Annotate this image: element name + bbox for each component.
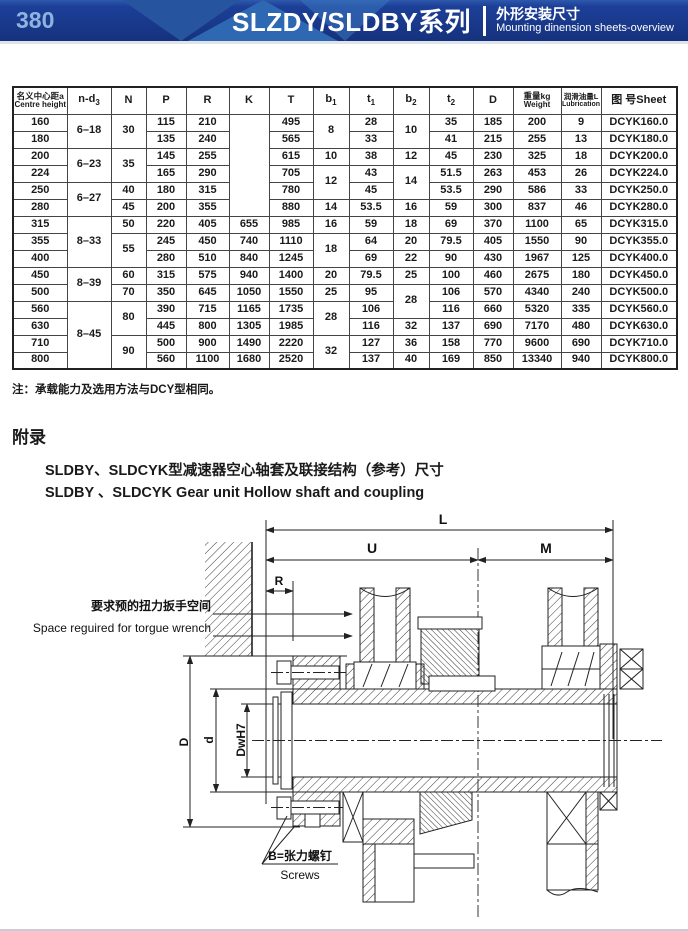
table-cell: 2675: [513, 267, 561, 284]
table-row: 3158–335022040565598516591869370110065DC…: [13, 216, 677, 233]
col-R: R: [186, 87, 229, 114]
table-cell: 10: [393, 114, 429, 148]
table-cell: 255: [513, 131, 561, 148]
table-cell: 400: [13, 250, 67, 267]
table-cell: 6–27: [67, 182, 111, 216]
table-cell: 315: [186, 182, 229, 199]
table-cell: DCYK560.0: [601, 301, 677, 318]
table-cell: 35: [429, 114, 473, 131]
table-cell: DCYK450.0: [601, 267, 677, 284]
table-cell: 1050: [229, 284, 269, 301]
table-row: 280452003558801453.5165930083746DCYK280.…: [13, 199, 677, 216]
table-cell: 32: [393, 318, 429, 335]
table-cell: 560: [146, 352, 186, 369]
table-cell: 495: [269, 114, 313, 131]
table-cell: 1305: [229, 318, 269, 335]
col-sheet: 图 号Sheet: [601, 87, 677, 114]
table-cell: 90: [561, 233, 601, 250]
table-row: 710905009001490222032127361587709600690D…: [13, 335, 677, 352]
table-cell: 2520: [269, 352, 313, 369]
table-cell: 18: [393, 216, 429, 233]
table-cell: 280: [146, 250, 186, 267]
table-header: 名义中心距a Centre height n-d3 N P R K T b1 t…: [13, 87, 677, 114]
table-cell: 22: [393, 250, 429, 267]
dim-label-d: d: [202, 736, 216, 743]
page-number: 380: [16, 7, 54, 34]
table-cell: 137: [349, 352, 393, 369]
table-cell: 100: [429, 267, 473, 284]
table-cell: DCYK280.0: [601, 199, 677, 216]
table-cell: 1967: [513, 250, 561, 267]
table-cell: 800: [13, 352, 67, 369]
table-cell: 1490: [229, 335, 269, 352]
table-cell: 16: [393, 199, 429, 216]
table-cell: 1100: [513, 216, 561, 233]
table-cell: DCYK180.0: [601, 131, 677, 148]
table-cell: 33: [349, 131, 393, 148]
table-cell: 224: [13, 165, 67, 182]
table-cell: 985: [269, 216, 313, 233]
dim-label-DwH7: DwH7: [234, 723, 248, 757]
table-cell: 215: [473, 131, 513, 148]
table-cell: 5320: [513, 301, 561, 318]
table-cell: 837: [513, 199, 561, 216]
table-cell: DCYK400.0: [601, 250, 677, 267]
table-cell: 255: [186, 148, 229, 165]
table-cell: 8–33: [67, 216, 111, 267]
table-cell: DCYK250.0: [601, 182, 677, 199]
upper-screw-assembly: [183, 656, 347, 689]
table-cell: 185: [473, 114, 513, 131]
table-cell: 70: [111, 284, 146, 301]
table-cell: 51.5: [429, 165, 473, 182]
table-cell: 565: [269, 131, 313, 148]
table-cell: 20: [313, 267, 349, 284]
table-cell: 240: [186, 131, 229, 148]
spec-table-body: 1606–183011521049582810351852009DCYK160.…: [13, 114, 677, 369]
table-cell: 145: [146, 148, 186, 165]
table-cell: DCYK355.0: [601, 233, 677, 250]
table-cell: 169: [429, 352, 473, 369]
table-cell: 16: [313, 216, 349, 233]
table-cell: 1245: [269, 250, 313, 267]
table-cell: 263: [473, 165, 513, 182]
table-cell: 350: [146, 284, 186, 301]
table-cell: 90: [429, 250, 473, 267]
table-cell: 33: [561, 182, 601, 199]
table-cell: 200: [146, 199, 186, 216]
table-cell: 165: [146, 165, 186, 182]
table-cell: 125: [561, 250, 601, 267]
table-cell: 1100: [186, 352, 229, 369]
table-cell: 43: [349, 165, 393, 182]
table-cell: 13340: [513, 352, 561, 369]
table-cell: 45: [349, 182, 393, 199]
table-cell: 445: [146, 318, 186, 335]
lower-gear-section: [414, 792, 474, 868]
col-K: K: [229, 87, 269, 114]
table-cell: 575: [186, 267, 229, 284]
table-cell: 14: [313, 199, 349, 216]
table-cell: 53.5: [349, 199, 393, 216]
col-t1: t1: [349, 87, 393, 114]
table-cell: DCYK160.0: [601, 114, 677, 131]
screws-label-zh: B=张力螺钉: [268, 848, 332, 863]
table-cell: 10: [313, 148, 349, 165]
table-cell: 570: [473, 284, 513, 301]
table-cell: 69: [429, 216, 473, 233]
table-cell: [229, 114, 269, 216]
table-cell: 106: [429, 284, 473, 301]
table-cell: 12: [393, 148, 429, 165]
table-cell: 200: [513, 114, 561, 131]
table-cell: DCYK224.0: [601, 165, 677, 182]
table-cell: 245: [146, 233, 186, 250]
table-row: 5608–45803907151165173528106116660532033…: [13, 301, 677, 318]
table-cell: 2220: [269, 335, 313, 352]
table-cell: 50: [111, 216, 146, 233]
col-b1: b1: [313, 87, 349, 114]
subtitle-en: Mounting dinension sheets-overview: [496, 22, 674, 35]
table-cell: 180: [146, 182, 186, 199]
table-cell: 137: [429, 318, 473, 335]
table-cell: 1550: [269, 284, 313, 301]
table-cell: 45: [111, 199, 146, 216]
table-cell: 115: [146, 114, 186, 131]
table-cell: 645: [186, 284, 229, 301]
lower-right-bearing-hub: [547, 792, 617, 895]
table-cell: 1985: [269, 318, 313, 335]
table-cell: 800: [186, 318, 229, 335]
dimension-table: 名义中心距a Centre height n-d3 N P R K T b1 t…: [12, 86, 678, 370]
table-cell: 780: [269, 182, 313, 199]
right-hub-and-bearing: [542, 588, 643, 689]
table-cell: 1400: [269, 267, 313, 284]
appendix-label: 附录: [12, 423, 688, 448]
table-cell: 220: [146, 216, 186, 233]
table-cell: 18: [313, 233, 349, 267]
lower-screw-assembly: [271, 792, 346, 827]
table-cell: 450: [186, 233, 229, 250]
table-cell: 315: [146, 267, 186, 284]
table-cell: 160: [13, 114, 67, 131]
gear-section: [418, 617, 495, 691]
torque-note-en: Space reguired for torgue wrench: [33, 621, 211, 635]
table-cell: 14: [393, 165, 429, 199]
table-cell: 740: [229, 233, 269, 250]
table-row: 35555245450740111018642079.5405155090DCY…: [13, 233, 677, 250]
col-b2: b2: [393, 87, 429, 114]
table-cell: 500: [146, 335, 186, 352]
table-cell: 40: [393, 352, 429, 369]
table-cell: 615: [269, 148, 313, 165]
table-cell: DCYK315.0: [601, 216, 677, 233]
table-cell: 250: [13, 182, 67, 199]
table-cell: 46: [561, 199, 601, 216]
torque-note-zh: 要求预的扭力扳手空间: [91, 598, 211, 613]
table-cell: 715: [186, 301, 229, 318]
table-cell: 300: [473, 199, 513, 216]
table-cell: 45: [429, 148, 473, 165]
table-cell: 9600: [513, 335, 561, 352]
table-cell: 6–18: [67, 114, 111, 148]
table-cell: 240: [561, 284, 601, 301]
table-cell: 18: [561, 148, 601, 165]
table-cell: 880: [269, 199, 313, 216]
table-cell: 30: [111, 114, 146, 148]
hollow-shaft-section: [252, 689, 662, 792]
table-cell: DCYK710.0: [601, 335, 677, 352]
table-cell: 460: [473, 267, 513, 284]
header-subtitle: 外形安装尺寸 Mounting dinension sheets-overvie…: [496, 6, 674, 35]
table-cell: 28: [393, 284, 429, 318]
table-cell: 135: [146, 131, 186, 148]
col-weight: 重量kg Weight: [513, 87, 561, 114]
col-T: T: [269, 87, 313, 114]
table-cell: 430: [473, 250, 513, 267]
table-cell: 355: [13, 233, 67, 250]
dim-label-R: R: [275, 574, 284, 588]
mounting-wall: [205, 542, 252, 656]
lower-left-bearing-hub: [343, 792, 414, 902]
table-cell: 290: [473, 182, 513, 199]
appendix-title-en: SLDBY 、SLDCYK Gear unit Hollow shaft and…: [45, 481, 688, 502]
appendix-title-zh: SLDBY、SLDCYK型减速器空心轴套及联接结构（参考）尺寸: [45, 459, 688, 480]
table-cell: 630: [13, 318, 67, 335]
table-cell: 180: [561, 267, 601, 284]
table-cell: 41: [429, 131, 473, 148]
footnote: 注：承载能力及选用方法与DCY型相同。: [12, 381, 688, 397]
table-cell: 450: [13, 267, 67, 284]
dim-label-D: D: [177, 737, 191, 746]
table-cell: 690: [561, 335, 601, 352]
table-cell: 25: [393, 267, 429, 284]
table-cell: 116: [349, 318, 393, 335]
table-cell: 1165: [229, 301, 269, 318]
table-cell: 200: [13, 148, 67, 165]
table-cell: 710: [13, 335, 67, 352]
table-cell: 210: [186, 114, 229, 131]
table-cell: 370: [473, 216, 513, 233]
table-cell: 405: [186, 216, 229, 233]
table-cell: 586: [513, 182, 561, 199]
table-cell: 20: [393, 233, 429, 250]
table-cell: 26: [561, 165, 601, 182]
table-cell: 6–23: [67, 148, 111, 182]
dim-label-L: L: [439, 511, 448, 527]
col-D: D: [473, 87, 513, 114]
table-cell: 7170: [513, 318, 561, 335]
table-cell: 390: [146, 301, 186, 318]
table-cell: 690: [473, 318, 513, 335]
table-cell: 8–39: [67, 267, 111, 301]
series-title: SLZDY/SLDBY系列: [232, 2, 471, 39]
table-cell: 355: [186, 199, 229, 216]
table-cell: 900: [186, 335, 229, 352]
page-header: 380 SLZDY/SLDBY系列 外形安装尺寸 Mounting dinens…: [0, 0, 688, 44]
table-cell: 850: [473, 352, 513, 369]
table-cell: 12: [313, 165, 349, 199]
table-cell: 32: [313, 335, 349, 369]
table-cell: 116: [429, 301, 473, 318]
table-cell: 500: [13, 284, 67, 301]
table-cell: 79.5: [349, 267, 393, 284]
table-cell: 335: [561, 301, 601, 318]
table-cell: 660: [473, 301, 513, 318]
table-cell: 1735: [269, 301, 313, 318]
screws-label-en: Screws: [280, 868, 319, 882]
table-cell: 95: [349, 284, 393, 301]
table-cell: 40: [111, 182, 146, 199]
table-cell: 480: [561, 318, 601, 335]
table-cell: 280: [13, 199, 67, 216]
table-cell: 28: [313, 301, 349, 335]
table-cell: 69: [349, 250, 393, 267]
table-cell: 90: [111, 335, 146, 369]
table-cell: 127: [349, 335, 393, 352]
table-row: 2006–23351452556151038124523032518DCYK20…: [13, 148, 677, 165]
table-row: 50070350645105015502595281065704340240DC…: [13, 284, 677, 301]
table-cell: 158: [429, 335, 473, 352]
table-cell: DCYK500.0: [601, 284, 677, 301]
table-cell: 106: [349, 301, 393, 318]
table-cell: 1110: [269, 233, 313, 250]
table-cell: 25: [313, 284, 349, 301]
table-cell: DCYK200.0: [601, 148, 677, 165]
table-header-row: 名义中心距a Centre height n-d3 N P R K T b1 t…: [13, 87, 677, 114]
table-cell: 13: [561, 131, 601, 148]
table-cell: 64: [349, 233, 393, 250]
table-cell: 560: [13, 301, 67, 318]
col-n-d3: n-d3: [67, 87, 111, 114]
table-cell: 4340: [513, 284, 561, 301]
table-cell: 59: [349, 216, 393, 233]
table-cell: 1550: [513, 233, 561, 250]
table-cell: 940: [561, 352, 601, 369]
hollow-shaft-drawing: L U M R 要求预的扭力扳手空间 Space reguired for to…: [0, 504, 688, 931]
table-cell: 60: [111, 267, 146, 284]
table-cell: 230: [473, 148, 513, 165]
table-cell: 9: [561, 114, 601, 131]
col-lubrication: 润滑油量L Lubrication: [561, 87, 601, 114]
table-cell: 510: [186, 250, 229, 267]
table-cell: 770: [473, 335, 513, 352]
table-cell: 940: [229, 267, 269, 284]
dim-label-M: M: [540, 540, 552, 556]
appendix: 附录 SLDBY、SLDCYK型减速器空心轴套及联接结构（参考）尺寸 SLDBY…: [12, 423, 688, 502]
col-N: N: [111, 87, 146, 114]
table-cell: 65: [561, 216, 601, 233]
left-hub-and-bearing: [346, 588, 424, 689]
table-cell: 453: [513, 165, 561, 182]
subtitle-zh: 外形安装尺寸: [496, 6, 674, 22]
table-cell: 1680: [229, 352, 269, 369]
table-cell: 79.5: [429, 233, 473, 250]
table-cell: DCYK800.0: [601, 352, 677, 369]
table-cell: 840: [229, 250, 269, 267]
table-cell: 8: [313, 114, 349, 148]
table-cell: 405: [473, 233, 513, 250]
table-cell: DCYK630.0: [601, 318, 677, 335]
table-cell: 325: [513, 148, 561, 165]
table-row: 1606–183011521049582810351852009DCYK160.…: [13, 114, 677, 131]
col-centre-height: 名义中心距a Centre height: [13, 87, 67, 114]
table-cell: 59: [429, 199, 473, 216]
table-cell: 8–45: [67, 301, 111, 369]
table-cell: 53.5: [429, 182, 473, 199]
table-cell: 315: [13, 216, 67, 233]
col-P: P: [146, 87, 186, 114]
header-divider: [483, 6, 486, 36]
table-cell: 180: [13, 131, 67, 148]
table-cell: 35: [111, 148, 146, 182]
dim-label-U: U: [367, 540, 377, 556]
table-row: 4508–396031557594014002079.5251004602675…: [13, 267, 677, 284]
table-cell: 80: [111, 301, 146, 335]
table-cell: 28: [349, 114, 393, 131]
col-t2: t2: [429, 87, 473, 114]
table-cell: 36: [393, 335, 429, 352]
table-cell: 55: [111, 233, 146, 267]
table-cell: 655: [229, 216, 269, 233]
table-cell: 290: [186, 165, 229, 182]
table-cell: 705: [269, 165, 313, 182]
table-cell: 38: [349, 148, 393, 165]
